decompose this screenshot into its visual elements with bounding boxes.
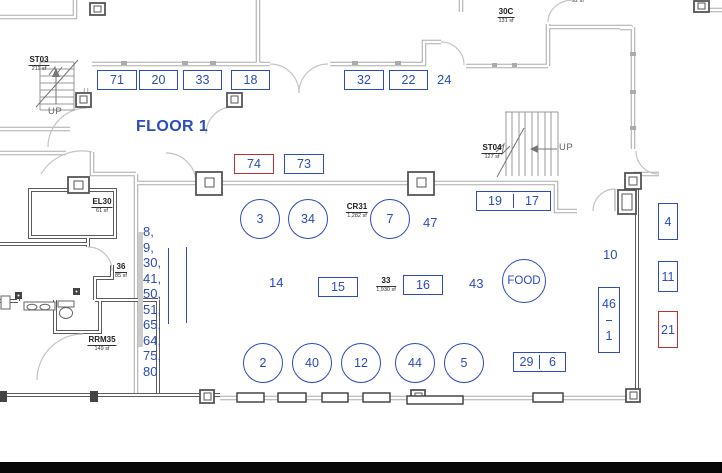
list-item-64: 64, <box>143 333 161 349</box>
table-34[interactable]: 34 <box>288 199 328 239</box>
booth-4[interactable]: 4 <box>658 203 678 240</box>
room-label-st03: ST03211 sf <box>28 55 49 73</box>
list-item-9: 9, <box>143 240 154 256</box>
st04-up-label: UP <box>559 142 573 153</box>
list-item-50: 50, <box>143 286 161 302</box>
booth-74[interactable]: 74 <box>234 154 274 174</box>
booth-16[interactable]: 16 <box>403 275 443 295</box>
restroom-fixtures <box>1 288 80 319</box>
booth-32[interactable]: 32 <box>344 70 384 90</box>
table-3[interactable]: 3 <box>240 199 280 239</box>
marker-14: 14 <box>269 275 283 290</box>
room-label-36: 3685 sf <box>115 262 127 280</box>
list-item-30: 30, <box>143 255 161 271</box>
page-title: FLOOR 1 <box>136 118 208 136</box>
booth-20[interactable]: 20 <box>139 70 178 90</box>
list-item-75: 75, <box>143 348 161 364</box>
booth-73[interactable]: 73 <box>284 154 324 174</box>
booth-pair-19-17[interactable]: 19 17 <box>476 191 551 211</box>
table-44[interactable]: 44 <box>395 343 435 383</box>
st03-up-label: UP <box>48 106 62 117</box>
list-divider-line-1 <box>168 248 170 324</box>
table-5[interactable]: 5 <box>444 343 484 383</box>
booth-22[interactable]: 22 <box>389 70 428 90</box>
booth-19[interactable]: 19 <box>477 194 513 208</box>
list-item-51: 51, <box>143 302 161 318</box>
booth-18[interactable]: 18 <box>231 70 270 90</box>
booth-pair-29-6[interactable]: 29 6 <box>513 352 566 372</box>
floorplan-canvas: FLOOR 1 ST03211 sf EL3061 sf 3685 sf RRM… <box>0 0 722 473</box>
booth-46[interactable]: 46 <box>602 288 616 320</box>
marker-43: 43 <box>469 276 483 291</box>
marker-47: 47 <box>423 215 437 230</box>
wall-shading-strip <box>138 232 143 347</box>
stairs-st04 <box>496 112 558 177</box>
room-label-partial: 92 sf <box>572 0 584 4</box>
marker-10: 10 <box>603 247 617 262</box>
booth-29[interactable]: 29 <box>514 355 539 369</box>
table-12[interactable]: 12 <box>341 343 381 383</box>
list-item-65: 65, <box>143 317 161 333</box>
booth-stack-46-1[interactable]: 46 1 <box>598 287 620 353</box>
list-item-80: 80 <box>143 364 157 380</box>
table-40[interactable]: 40 <box>292 343 332 383</box>
room-label-st04: ST04127 sf <box>481 143 502 161</box>
room-label-33: 331,930 sf <box>376 276 396 294</box>
room-label-rrm35: RRM35149 sf <box>87 335 116 353</box>
booth-71[interactable]: 71 <box>97 70 137 90</box>
booth-17[interactable]: 17 <box>513 194 550 208</box>
table-7[interactable]: 7 <box>370 199 410 239</box>
booth-21[interactable]: 21 <box>658 311 678 348</box>
table-2[interactable]: 2 <box>243 343 283 383</box>
booth-15[interactable]: 15 <box>318 277 358 297</box>
list-item-8: 8, <box>143 224 154 240</box>
door-arcs <box>37 0 659 380</box>
booth-33[interactable]: 33 <box>183 70 222 90</box>
room-label-cr31: CR311,282 sf <box>346 202 368 220</box>
food-table[interactable]: FOOD <box>502 259 546 303</box>
booth-1[interactable]: 1 <box>606 320 613 353</box>
list-item-41: 41, <box>143 271 161 287</box>
room-label-30c: 30C131 sf <box>498 7 515 25</box>
list-divider-line-2 <box>186 247 188 323</box>
bottom-bar <box>0 462 722 473</box>
marker-24: 24 <box>437 72 451 87</box>
room-label-el30: EL3061 sf <box>91 197 112 215</box>
booth-6[interactable]: 6 <box>539 355 565 369</box>
booth-11[interactable]: 11 <box>658 261 678 292</box>
